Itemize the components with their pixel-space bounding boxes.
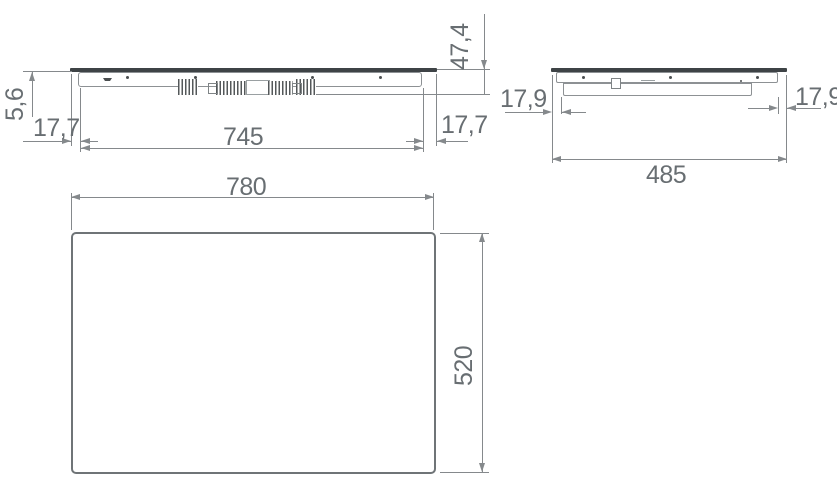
arrowhead-left: [71, 194, 80, 200]
ext-line: [423, 88, 424, 152]
dim-label-overhang-right: 17,7: [441, 113, 488, 138]
arrowhead-right: [778, 156, 787, 162]
screw-dot: [379, 76, 382, 79]
dim-line-plan-depth: [482, 233, 483, 472]
arrowhead-right: [769, 105, 778, 111]
arrowhead-right: [414, 145, 423, 151]
ext-line: [778, 97, 779, 114]
arrowhead-left: [562, 109, 571, 115]
dim-line-side-width: [552, 159, 787, 160]
dim-label-overhang-left: 17,7: [33, 116, 80, 141]
arrowhead-left: [81, 138, 90, 144]
dim-label-side-overhang-right: 17,9: [795, 85, 837, 110]
dim-label-body-width: 745: [223, 125, 263, 150]
side-bracket: [611, 78, 621, 89]
ext-line: [786, 75, 787, 163]
heatsink-capacitor: [246, 80, 270, 95]
plan-outline: [71, 232, 436, 474]
arrowhead-right: [414, 138, 423, 144]
arrowhead-up: [479, 233, 485, 242]
dim-line-total-height: [484, 14, 485, 94]
side-dash-mark: [641, 80, 655, 81]
ext-line: [316, 94, 490, 95]
arrowhead-right: [425, 194, 434, 200]
ext-line: [552, 75, 553, 163]
side-body-housing: [563, 83, 752, 96]
screw-dot: [740, 80, 742, 82]
screw-dot: [669, 76, 672, 79]
screw-dot: [582, 76, 585, 79]
ext-line: [436, 74, 437, 146]
heatsink-bracket: [292, 83, 302, 94]
technical-drawing: 47,4 5,6 17,7 745 17,7: [0, 0, 837, 483]
dim-label-side-width: 485: [646, 163, 686, 188]
screw-dot: [756, 76, 759, 79]
heatsink-fins: [268, 81, 293, 95]
ext-line: [440, 472, 489, 473]
dim-label-glass-thickness: 5,6: [3, 83, 28, 121]
dim-label-plan-width: 780: [226, 175, 266, 200]
arrowhead-down: [481, 60, 487, 69]
dim-label-plan-depth: 520: [452, 338, 477, 386]
arrowhead-up: [29, 72, 35, 81]
side-frame: [556, 72, 778, 83]
dim-label-total-height: 47,4: [448, 12, 473, 70]
heatsink-assembly: [178, 79, 316, 95]
heatsink-bracket: [208, 83, 218, 94]
arrowhead-down: [479, 463, 485, 472]
screw-dot: [126, 76, 129, 79]
dim-label-side-overhang-left: 17,9: [500, 87, 547, 112]
arrowhead-left: [552, 156, 561, 162]
arrowhead-left: [81, 145, 90, 151]
heatsink-fins: [178, 79, 198, 95]
